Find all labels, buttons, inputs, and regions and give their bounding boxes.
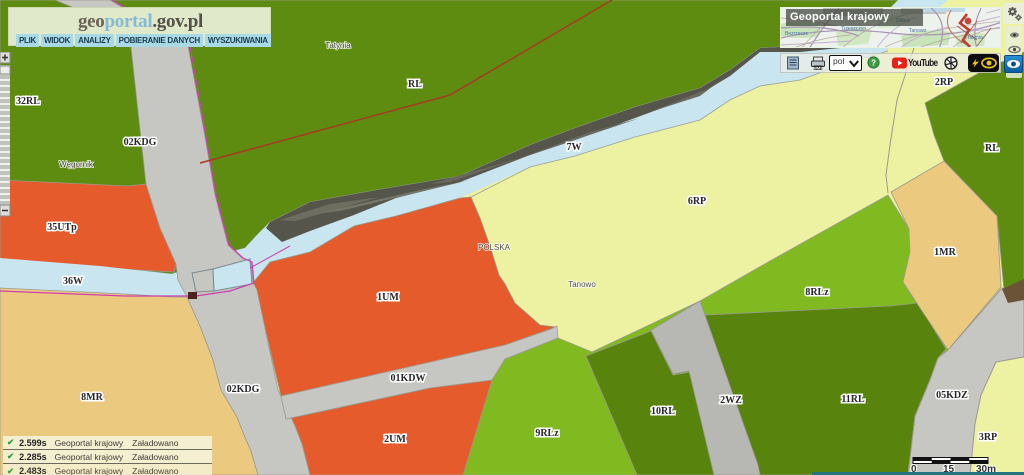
svg-text:2UM: 2UM <box>384 434 406 445</box>
svg-text:POLSKA: POLSKA <box>478 243 511 252</box>
svg-text:1MR: 1MR <box>934 247 956 258</box>
svg-text:2RP: 2RP <box>935 77 953 88</box>
svg-text:8RLz: 8RLz <box>805 287 829 298</box>
svg-text:RL: RL <box>985 143 999 154</box>
svg-text:WMS: WMS <box>813 66 823 71</box>
svg-text:02KDG: 02KDG <box>124 137 157 148</box>
svg-text:01KDW: 01KDW <box>391 373 426 384</box>
svg-text:Tanowo: Tanowo <box>568 280 596 289</box>
svg-text:Węgornik: Węgornik <box>59 160 94 169</box>
svg-text:Tatynia: Tatynia <box>325 41 351 50</box>
svg-text:3RP: 3RP <box>979 432 997 443</box>
svg-text:?: ? <box>871 59 876 68</box>
svg-text:8MR: 8MR <box>81 392 103 403</box>
svg-text:10RL: 10RL <box>651 406 675 417</box>
svg-text:35UTp: 35UTp <box>47 222 77 233</box>
svg-text:11RL: 11RL <box>841 394 865 405</box>
svg-text:32RL: 32RL <box>16 96 40 107</box>
svg-text:1UM: 1UM <box>377 292 399 303</box>
svg-text:36W: 36W <box>63 276 83 287</box>
svg-text:02KDG: 02KDG <box>227 384 260 395</box>
svg-text:9RLz: 9RLz <box>535 428 559 439</box>
svg-text:2WZ: 2WZ <box>720 395 742 406</box>
svg-text:Tatynia: Tatynia <box>967 35 983 41</box>
svg-text:RL: RL <box>408 79 422 90</box>
svg-text:Trzeszczyn: Trzeszczyn <box>841 26 866 32</box>
svg-text:6RP: 6RP <box>688 196 706 207</box>
svg-text:Tanowo: Tanowo <box>909 28 926 34</box>
svg-text:Bezrzecze: Bezrzecze <box>785 31 809 37</box>
svg-text:7W: 7W <box>567 142 582 153</box>
svg-text:05KDZ: 05KDZ <box>936 390 968 401</box>
